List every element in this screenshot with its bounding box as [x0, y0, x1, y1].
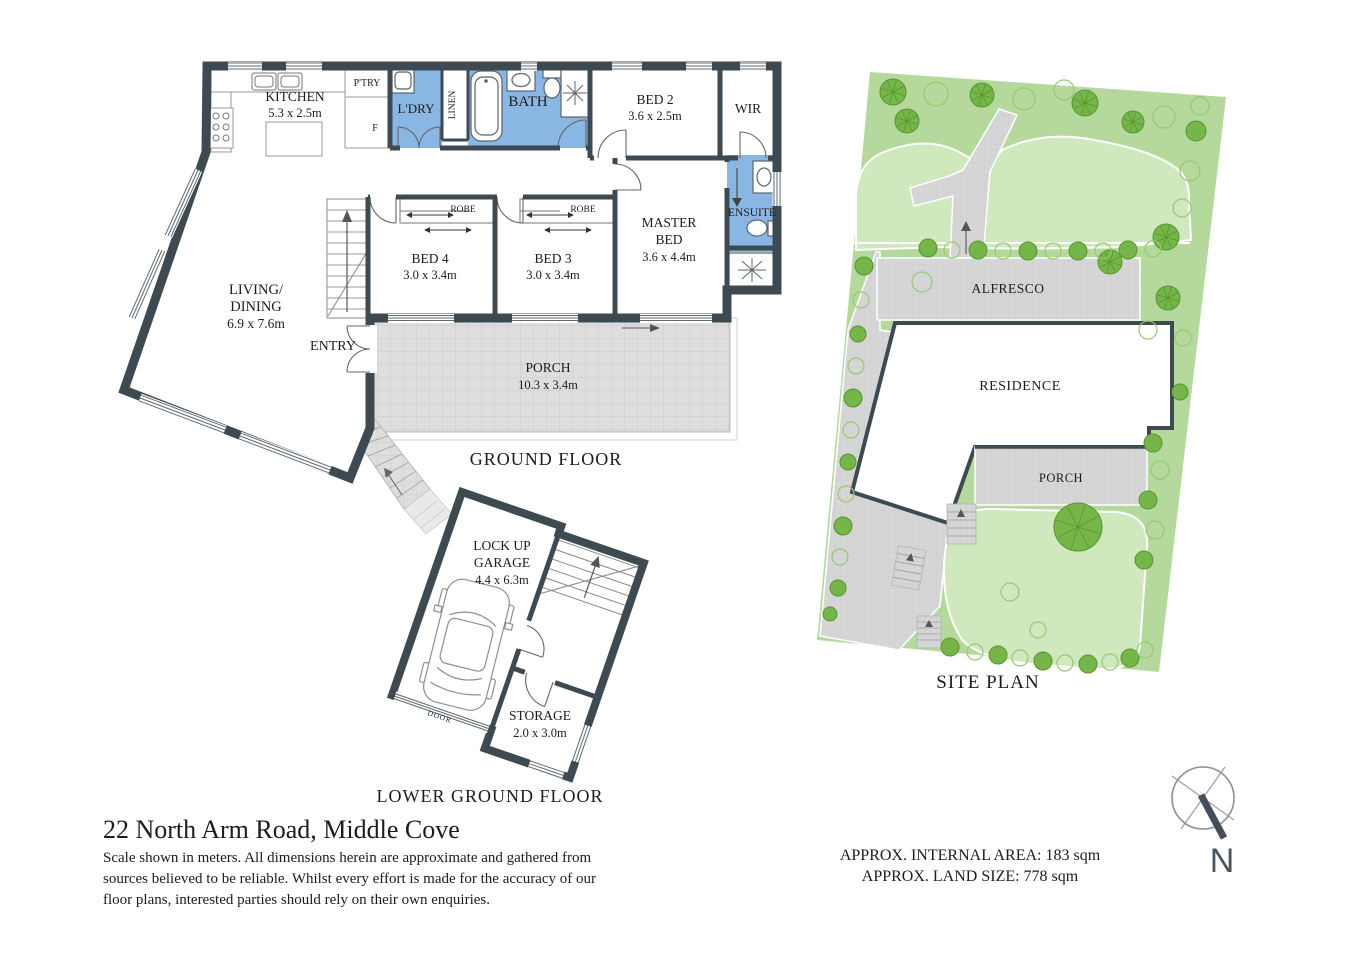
- ensuite-basin-icon: [753, 161, 775, 193]
- tree-icon: [1135, 551, 1153, 569]
- floorplan-canvas: KITCHEN 5.3 x 2.5m P'TRY F L'DRY LINEN B…: [0, 0, 1357, 960]
- tree-icon: [919, 239, 937, 257]
- tree-icon: [1186, 121, 1206, 141]
- room-label-bed2: BED 2: [636, 92, 673, 107]
- top-lawn: [856, 137, 1191, 250]
- tree-icon: [1121, 649, 1139, 667]
- lower-ground-floor-title: LOWER GROUND FLOOR: [377, 786, 604, 806]
- tree-icon: [834, 517, 852, 535]
- room-label-ensuite: ENSUITE: [728, 207, 776, 219]
- disclaimer-line-3: floor plans, interested parties should r…: [103, 892, 490, 908]
- tree-icon: [941, 638, 959, 656]
- site-plan: ALFRESCO RESIDENCE PORCH SITE PLAN: [817, 72, 1226, 693]
- compass-icon: N: [1172, 767, 1234, 880]
- room-label-living-1: LIVING/: [229, 282, 284, 298]
- room-dims-porch: 10.3 x 3.4m: [518, 378, 578, 392]
- room-label-garage-1: LOCK UP: [473, 538, 530, 553]
- tree-icon: [969, 241, 987, 259]
- room-label-linen: LINEN: [448, 91, 458, 120]
- tree-icon: [823, 607, 837, 621]
- room-dims-bed4: 3.0 x 3.4m: [403, 268, 457, 282]
- bathtub-icon: [471, 71, 502, 141]
- room-label-garage-2: GARAGE: [474, 555, 530, 570]
- tree-icon: [830, 580, 846, 596]
- alfresco-label: ALFRESCO: [971, 281, 1044, 296]
- ground-floor-title: GROUND FLOOR: [470, 449, 623, 469]
- tree-icon: [850, 326, 866, 342]
- robe-label-bed3: ROBE: [570, 205, 596, 215]
- room-label-bed4: BED 4: [411, 251, 448, 266]
- room-dims-garage: 4.4 x 6.3m: [475, 573, 529, 587]
- room-dims-kitchen: 5.3 x 2.5m: [268, 106, 322, 120]
- floorplan-page: KITCHEN 5.3 x 2.5m P'TRY F L'DRY LINEN B…: [0, 0, 1357, 960]
- room-label-porch: PORCH: [525, 360, 570, 375]
- tree-icon: [1079, 655, 1097, 673]
- tree-icon: [855, 257, 873, 275]
- room-label-bed3: BED 3: [534, 251, 571, 266]
- address-title: 22 North Arm Road, Middle Cove: [103, 815, 460, 844]
- room-label-wir: WIR: [735, 101, 761, 116]
- room-dims-master: 3.6 x 4.4m: [642, 250, 696, 264]
- internal-stairs: [327, 199, 368, 318]
- room-label-bath: BATH: [508, 94, 547, 110]
- tree-icon: [1019, 242, 1037, 260]
- room-label-master-1: MASTER: [642, 215, 697, 230]
- room-dims-storage: 2.0 x 3.0m: [513, 726, 567, 740]
- shower-icon: [561, 69, 589, 117]
- room-label-living-2: DINING: [230, 299, 282, 315]
- residence-label: RESIDENCE: [979, 379, 1061, 394]
- site-plan-title: SITE PLAN: [936, 672, 1039, 693]
- disclaimer-line-2: sources believed to be reliable. Whilst …: [103, 871, 596, 887]
- room-label-storage: STORAGE: [509, 708, 571, 723]
- tree-icon: [840, 454, 856, 470]
- compass-north-label: N: [1210, 842, 1235, 880]
- room-label-fridge: F: [372, 123, 378, 134]
- room-dims-living: 6.9 x 7.6m: [227, 316, 285, 331]
- land-size-text: APPROX. LAND SIZE: 778 sqm: [862, 868, 1079, 885]
- annotations: 22 North Arm Road, Middle Cove Scale sho…: [103, 767, 1234, 908]
- room-label-master-2: BED: [656, 232, 683, 247]
- internal-area-text: APPROX. INTERNAL AREA: 183 sqm: [840, 847, 1101, 864]
- tree-icon: [989, 646, 1007, 664]
- room-label-laundry: L'DRY: [397, 101, 435, 116]
- room-dims-bed3: 3.0 x 3.4m: [526, 268, 580, 282]
- tree-icon: [1069, 242, 1087, 260]
- ensuite-shower-icon: [729, 253, 775, 287]
- room-label-pantry: P'TRY: [354, 78, 381, 89]
- lower-ground-floor-plan: LOCK UP GARAGE 4.4 x 6.3m STORAGE 2.0 x …: [377, 492, 652, 806]
- tree-icon: [844, 389, 862, 407]
- room-label-kitchen: KITCHEN: [265, 89, 324, 104]
- tree-icon: [1144, 434, 1162, 452]
- disclaimer-line-1: Scale shown in meters. All dimensions he…: [103, 850, 592, 866]
- tree-icon: [1119, 241, 1137, 259]
- room-dims-bed2: 3.6 x 2.5m: [628, 109, 682, 123]
- ground-floor-plan: KITCHEN 5.3 x 2.5m P'TRY F L'DRY LINEN B…: [124, 62, 782, 534]
- site-porch-label: PORCH: [1039, 471, 1083, 485]
- tree-icon: [1139, 491, 1157, 509]
- robe-label-bed4: ROBE: [450, 205, 476, 215]
- tree-icon: [1034, 652, 1052, 670]
- basin-icon: [507, 69, 535, 91]
- tree-icon: [1172, 384, 1188, 400]
- room-label-entry: ENTRY: [310, 339, 356, 354]
